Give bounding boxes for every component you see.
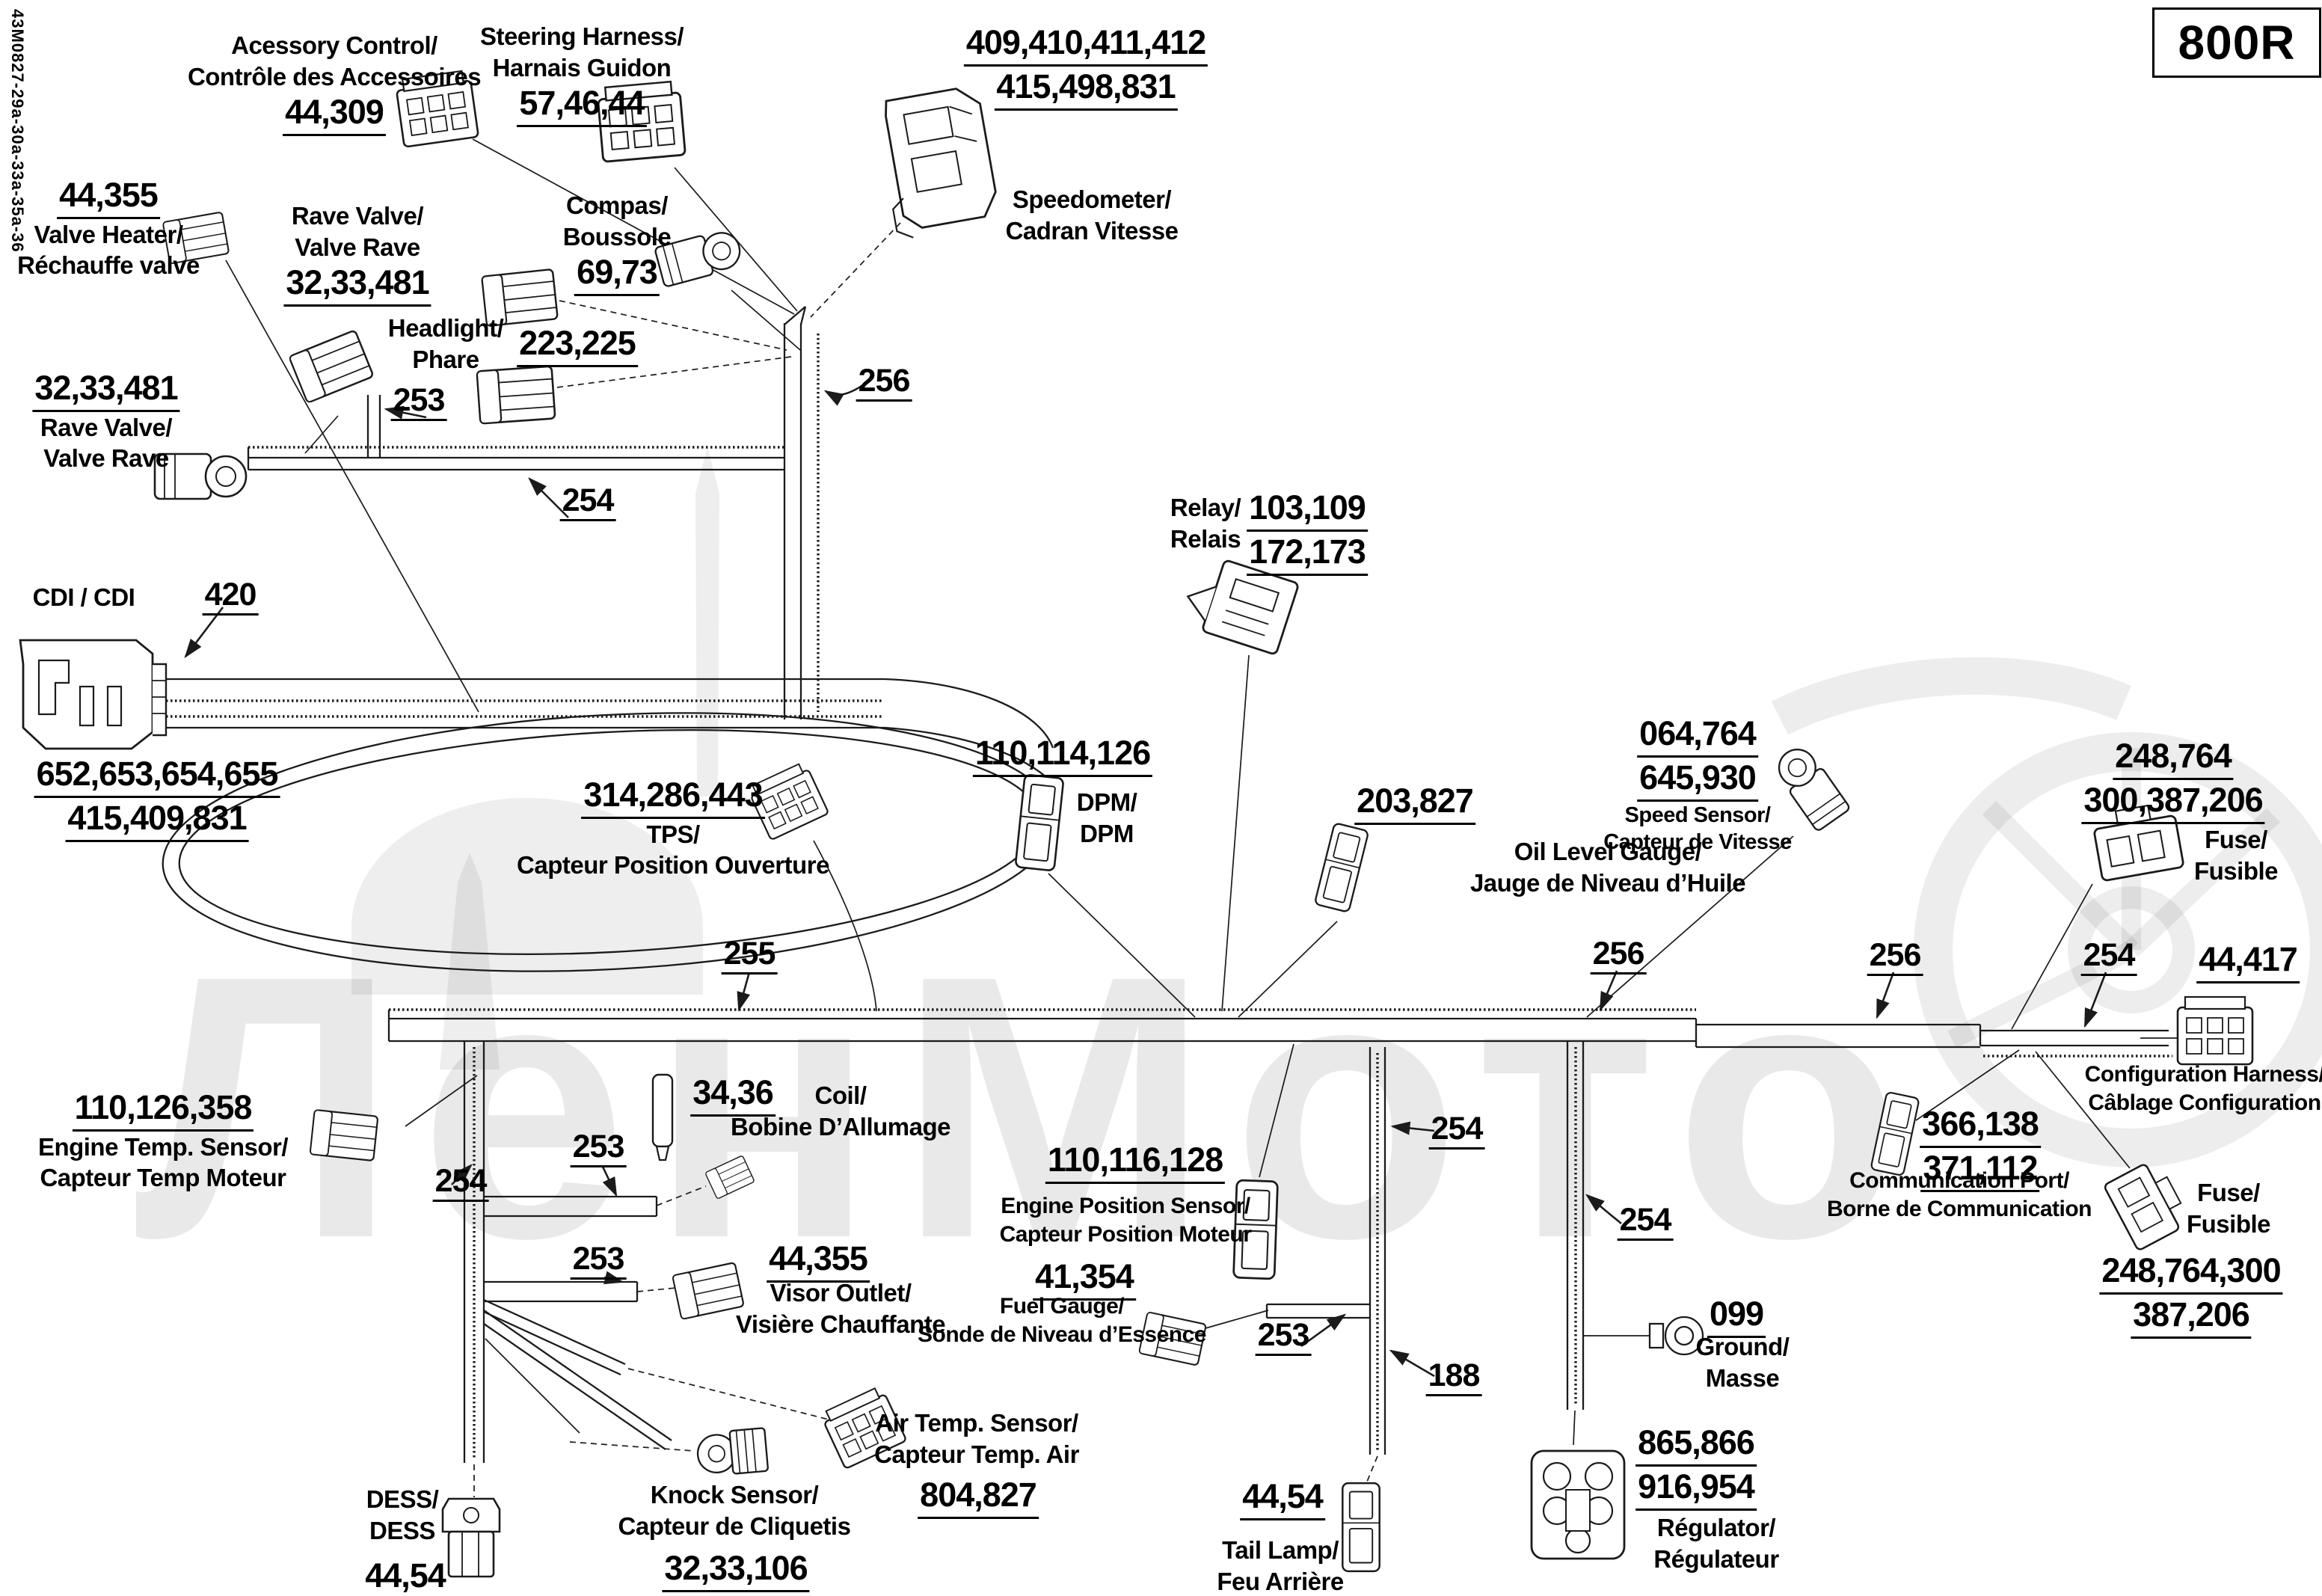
callout-oil-number: 203,827 [1354,781,1475,825]
callout-comm-name: Communication Port/ Borne de Communicati… [1827,1167,2092,1224]
callout-speed-sensor: 064,764 645,930 Speed Sensor/ Capteur de… [1603,713,1792,856]
cdi-pipe [166,679,1053,778]
fuse-bottom-connector-icon [2104,1157,2191,1250]
sheet-code: 43M0827-29a-30a-33a-35a-36 [7,9,27,253]
ref-254-regulator-branch: 254 [1618,1203,1674,1241]
callout-speedometer-name: Speedometer/ Cadran Vitesse [1006,184,1179,246]
ref-255-trunk: 255 [722,936,778,975]
callout-tps: 314,286,443 TPS/ Capteur Position Ouvert… [517,775,829,881]
dpm-connector-icon [1016,775,1064,871]
callout-tail-number: 44,54 [1240,1476,1325,1520]
dess-connector-icon [443,1499,500,1577]
callout-coil-name: Coil/ Bobine D’Allumage [731,1080,950,1142]
ref-420-cdi: 420 [203,577,259,616]
tail-lamp-connector-icon [1342,1483,1379,1571]
callout-engine-position-number: 110,116,128 [1045,1140,1225,1184]
knock-sensor-connector-icon [696,1428,768,1476]
callout-knock-name: Knock Sensor/ Capteur de Cliquetis [618,1479,851,1541]
callout-headlight-name: Headlight/ Phare [388,313,504,375]
callout-ground-name: Ground/ Masse [1696,1331,1790,1393]
callout-visor-number: 44,355 [767,1239,870,1283]
ref-254-engine-temp: 254 [433,1164,489,1202]
callout-accessory-control: Acessory Control/ Contrôle des Accessoir… [188,30,481,136]
callout-fuse-top-numbers: 248,764 300,387,206 [2081,736,2264,824]
fuel-tail-pipe [1267,1047,1385,1455]
callout-fuel-name: Fuel Gauge/ Sonde de Niveau d’Essence [918,1292,1206,1349]
ground-wire [1583,1317,1703,1354]
ref-253-top: 253 [391,383,447,421]
callout-cdi-name: CDI / CDI [33,582,135,613]
dess-drop-pipe [464,1041,484,1463]
coil-icon [653,1075,672,1160]
ref-254-trunk: 254 [2081,938,2137,976]
callout-fuse-bottom-name: Fuse/ Fusible [2187,1177,2270,1239]
callout-compass: Compas/ Boussole 69,73 [563,190,672,296]
callout-air-temp-number: 804,827 [918,1475,1039,1519]
ref-254-top: 254 [560,483,616,521]
callout-knock-number: 32,33,106 [662,1548,809,1592]
callout-dess-number: 44,54 [363,1556,448,1596]
coil-branch-pipe [484,1186,706,1216]
engine-temp-connector-icon [310,1110,378,1161]
callout-engine-temp: 110,126,358 Engine Temp. Sensor/ Capteur… [38,1087,288,1194]
ref-256-trunk-2: 256 [1867,938,1923,976]
ref-253-coil: 253 [571,1129,627,1167]
oil-gauge-connector-icon [1315,823,1369,912]
ref-254-engine-position: 254 [1429,1111,1485,1150]
callout-visor-name: Visor Outlet/ Visière Chauffante [736,1277,945,1339]
ref-256-top: 256 [856,363,912,402]
callout-tail-name: Tail Lamp/ Feu Arrière [1217,1535,1343,1596]
callout-steering-harness: Steering Harness/ Harnais Guidon 57,46,4… [480,21,684,127]
rave-valve-top-connector-icon [289,330,374,402]
visor-outlet-connector-icon [672,1262,744,1319]
callout-regulator-numbers: 865,866 916,954 [1635,1422,1757,1511]
comm-port-connector-icon [1870,1092,1919,1176]
callout-relay-numbers: 103,109 172,173 [1247,488,1368,576]
regulator-connector-icon [1532,1451,1624,1559]
coil-connector-icon [705,1155,755,1199]
callout-speedometer-numbers: 409,410,411,412 415,498,831 [964,22,1208,111]
callout-fuse-top-name: Fuse/ Fusible [2194,824,2278,886]
callout-air-temp-name: Air Temp. Sensor/ Capteur Temp. Air [874,1408,1079,1470]
callout-headlight-number: 223,225 [517,323,638,367]
regulator-drop-pipe [1567,1041,1583,1410]
ref-253-visor: 253 [571,1241,627,1280]
ref-188-tail: 188 [1426,1358,1482,1396]
cdi-connector-icon [20,640,166,749]
engine-fan-pipes [484,1300,672,1449]
callout-valve-heater: 44,355 Valve Heater/ Réchauffe valve [17,175,200,281]
callout-dpm-number: 110,114,126 [973,733,1152,777]
callout-config-number: 44,417 [2196,939,2300,983]
configuration-connector-icon [2178,997,2252,1064]
callout-dess-name: DESS/ DESS [366,1484,439,1546]
callout-cdi-numbers: 652,653,654,655 415,409,831 [34,754,280,842]
callout-engine-position-name: Engine Position Sensor/ Capteur Position… [1000,1192,1252,1249]
steering-drop-pipe [784,307,818,719]
ref-253-fuel: 253 [1256,1318,1312,1356]
main-trunk-pipe [389,1010,2172,1056]
model-code-badge: 800R [2152,7,2321,78]
wiring-diagram-page: ЛенМото [0,0,2322,1596]
ref-256-trunk-1: 256 [1591,936,1647,975]
callout-config-name: Configuration Harness/ Câblage Configura… [2085,1061,2322,1117]
visor-branch-pipe [484,1282,676,1301]
callout-rave-valve-top: Rave Valve/ Valve Rave 32,33,481 [283,200,431,307]
callout-regulator-name: Régulator/ Régulateur [1653,1512,1778,1574]
callout-fuse-bottom-numbers: 248,764,300 387,206 [2099,1250,2282,1339]
callout-dpm-name: DPM/ DPM [1077,787,1137,849]
callout-relay-name: Relay/ Relais [1170,492,1241,554]
callout-rave-valve-left: 32,33,481 Rave Valve/ Valve Rave [32,368,179,474]
